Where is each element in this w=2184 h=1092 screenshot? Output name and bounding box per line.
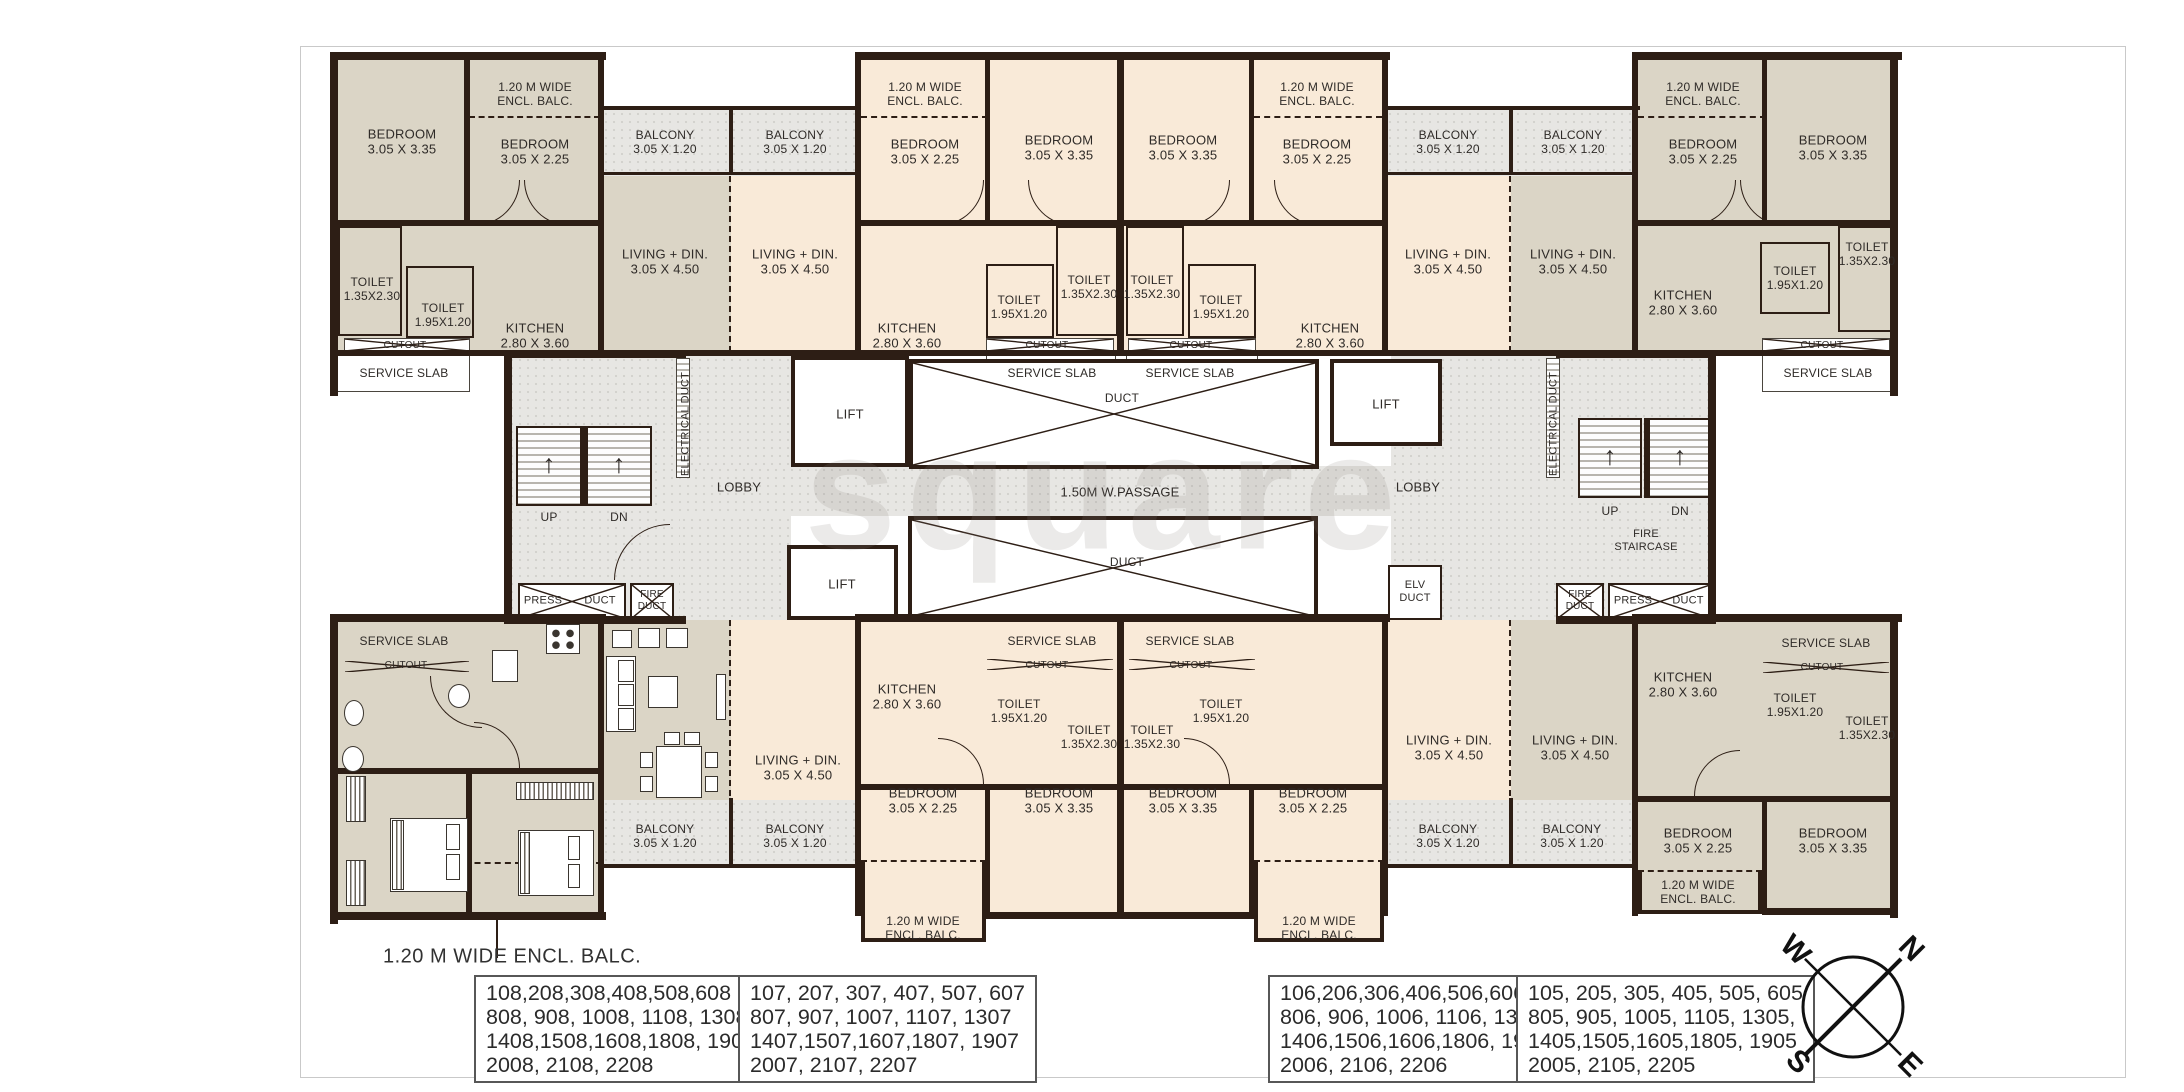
room-label: BEDROOM3.05 X 2.25: [501, 137, 570, 168]
room-label-line: BEDROOM: [889, 786, 958, 801]
balcony-label: BALCONY3.05 X 1.20: [763, 128, 827, 156]
room-label: BEDROOM3.05 X 2.25: [889, 786, 958, 817]
duct-label: DUCT: [1105, 391, 1139, 405]
wall-segment: [1249, 786, 1254, 916]
room-label: LIVING + DIN.3.05 X 4.50: [1405, 247, 1491, 278]
room-label-line: 3.05 X 3.35: [1149, 801, 1218, 816]
room-label: LIVING + DIN.3.05 X 4.50: [755, 753, 841, 784]
lift-label-line: LIFT: [1372, 396, 1400, 411]
room-label-line: BEDROOM: [1025, 786, 1094, 801]
wall-segment: [1509, 798, 1513, 865]
toilet-label: TOILET1.95X1.20: [1193, 697, 1250, 725]
stair-arrow: ↑: [1673, 441, 1686, 472]
lobby-label-line: LOBBY: [717, 479, 761, 494]
room-label: BEDROOM3.05 X 3.35: [1025, 133, 1094, 164]
toilet-label-line: TOILET: [1839, 240, 1896, 254]
electrical-duct-label-line: ELECTRICAL DUCT: [1548, 372, 1561, 476]
wall-segment: [464, 56, 470, 226]
duct-label-line: DUCT: [1110, 555, 1144, 569]
furniture-rect: [705, 776, 718, 792]
balcony-label-line: BALCONY: [633, 128, 697, 142]
lift-label: LIFT: [828, 576, 856, 591]
service-slab-label-line: SERVICE SLAB: [1782, 636, 1871, 650]
furniture-rect: [618, 708, 634, 730]
furniture-rect: [656, 746, 702, 798]
toilet-label-line: 1.95X1.20: [415, 315, 472, 329]
encl-balc-label-line: ENCL. BALC.: [1281, 928, 1357, 942]
encl-balc-label: 1.20 M WIDEENCL. BALC.: [497, 80, 573, 108]
toilet-label-line: 1.35X2.30: [1839, 728, 1896, 742]
room-label-line: 3.05 X 3.35: [368, 142, 437, 157]
balcony-label-line: 3.05 X 1.20: [763, 142, 827, 156]
dashed-line: [729, 620, 734, 796]
room-label-line: 3.05 X 4.50: [1530, 262, 1616, 277]
up-label-line: UP: [540, 510, 557, 524]
passage-label: 1.50M W.PASSAGE: [1060, 484, 1179, 499]
encl-balc-label-line: 1.20 M WIDE: [1281, 914, 1357, 928]
balcony-label-line: 3.05 X 1.20: [1540, 836, 1604, 850]
wall-segment: [598, 56, 604, 356]
encl-balc-label-line: 1.20 M WIDE: [887, 80, 963, 94]
furniture-rect: [648, 676, 678, 708]
service-slab-label: SERVICE SLAB: [360, 634, 449, 648]
furniture-stove: [546, 624, 580, 654]
electrical-duct-label-line: ELECTRICAL DUCT: [680, 372, 693, 476]
toilet-label-line: TOILET: [991, 697, 1048, 711]
living-105b: [1511, 620, 1636, 800]
fire-duct-label-line: FIRE: [1566, 589, 1595, 601]
toilet-label: TOILET1.35X2.30: [1839, 714, 1896, 742]
toilet-label-line: TOILET: [1193, 293, 1250, 307]
wall-segment: [504, 352, 686, 358]
cutout-label: CUTOUT: [1801, 662, 1844, 674]
wall-segment: [1121, 220, 1386, 226]
fire-duct-label-line: DUCT: [638, 601, 667, 613]
wall-segment: [1556, 352, 1716, 358]
room-label-line: 3.05 X 3.35: [1799, 841, 1868, 856]
toilet-label: TOILET1.95X1.20: [1767, 264, 1824, 292]
cutout-label: CUTOUT: [385, 660, 428, 672]
toilet-label-line: TOILET: [991, 293, 1048, 307]
encl-balc-label: 1.20 M WIDEENCL. BALC.: [1279, 80, 1355, 108]
furniture-rect: [618, 684, 634, 706]
furniture-rect: [705, 752, 718, 768]
room-label-line: BEDROOM: [1799, 826, 1868, 841]
room-label-line: BEDROOM: [368, 127, 437, 142]
toilet-label: TOILET1.35X2.30: [1839, 240, 1896, 268]
wall-segment: [1632, 56, 1638, 356]
room-label-line: 3.05 X 4.50: [752, 262, 838, 277]
stair-arrow-line: ↑: [542, 449, 555, 480]
room-label-line: 3.05 X 3.35: [1799, 148, 1868, 163]
dn-label: DN: [1671, 504, 1689, 518]
cutout-label-line: CUTOUT: [1026, 340, 1069, 352]
room-label-line: 3.05 X 4.50: [1532, 748, 1618, 763]
balcony-label: BALCONY3.05 X 1.20: [763, 822, 827, 850]
cutout-label: CUTOUT: [1801, 340, 1844, 352]
encl-balc-label-line: 1.20 M WIDE: [1660, 878, 1736, 892]
room-label: BEDROOM3.05 X 2.25: [1283, 137, 1352, 168]
room-label-line: LIVING + DIN.: [622, 247, 708, 262]
room-label: BEDROOM3.05 X 3.35: [368, 127, 437, 158]
room-label: BEDROOM3.05 X 2.25: [1669, 137, 1738, 168]
room-label-line: LIVING + DIN.: [1405, 247, 1491, 262]
balcony-label: BALCONY3.05 X 1.20: [1416, 128, 1480, 156]
duct-label-line: DUCT: [1672, 595, 1703, 608]
room-label-line: LIVING + DIN.: [752, 247, 838, 262]
room-label: BEDROOM3.05 X 3.35: [1149, 786, 1218, 817]
furniture-rect: [492, 650, 518, 682]
duct-shaft: [909, 359, 1319, 469]
room-label-line: BEDROOM: [1149, 786, 1218, 801]
toilet-label-line: 1.35X2.30: [1839, 254, 1896, 268]
duct-label-line: DUCT: [584, 595, 615, 608]
room-label: LIVING + DIN.3.05 X 4.50: [752, 247, 838, 278]
dashed-line: [1509, 620, 1514, 796]
wall-segment: [1632, 620, 1638, 916]
furniture-rect: [666, 628, 688, 648]
fire-staircase-label-line: FIRE: [1614, 528, 1677, 541]
compass-icon: N E S W: [1762, 916, 1944, 1092]
service-slab-label-line: SERVICE SLAB: [360, 634, 449, 648]
balcony-label-line: BALCONY: [1540, 822, 1604, 836]
room-label: BEDROOM3.05 X 2.25: [1664, 826, 1733, 857]
toilet-label-line: TOILET: [1061, 723, 1118, 737]
room-label-line: BEDROOM: [891, 137, 960, 152]
toilet-label-line: TOILET: [344, 275, 401, 289]
fire-duct-label: FIREDUCT: [638, 589, 667, 613]
toilet-label-line: 1.35X2.30: [1061, 287, 1118, 301]
encl-balc-label-line: ENCL. BALC.: [887, 94, 963, 108]
room-label-line: 3.05 X 3.35: [1149, 148, 1218, 163]
encl-balc-label-line: ENCL. BALC.: [885, 928, 961, 942]
room-label-line: KITCHEN: [1296, 321, 1365, 336]
dn-label-line: DN: [1671, 504, 1689, 518]
room-label-line: 3.05 X 4.50: [1406, 748, 1492, 763]
toilet-label-line: TOILET: [415, 301, 472, 315]
flat-numbers-line: 806, 906, 1006, 1106, 1306: [1280, 1005, 1549, 1029]
balcony-label-line: BALCONY: [763, 128, 827, 142]
furniture-hatch: [516, 782, 594, 800]
cutout-label: CUTOUT: [1026, 340, 1069, 352]
furniture-rect: [638, 628, 660, 648]
cutout-label: CUTOUT: [1170, 660, 1213, 672]
furniture-oval: [344, 700, 364, 726]
room-label-line: 2.80 X 3.60: [1649, 685, 1718, 700]
flat-numbers-line: 2006, 2106, 2206: [1280, 1053, 1549, 1077]
encl-balc-label: 1.20 M WIDEENCL. BALC.: [885, 914, 961, 942]
room-label-line: 3.05 X 4.50: [1405, 262, 1491, 277]
lobby-label-line: LOBBY: [1396, 479, 1440, 494]
room-label-line: 3.05 X 2.25: [1279, 801, 1348, 816]
room-label-line: BEDROOM: [1669, 137, 1738, 152]
toilet-label-line: TOILET: [1839, 714, 1896, 728]
service-slab-label: SERVICE SLAB: [1782, 636, 1871, 650]
room-label-line: KITCHEN: [501, 321, 570, 336]
room-label-line: 3.05 X 3.35: [1025, 801, 1094, 816]
cross-hatch-icon: [913, 363, 1315, 465]
wall-segment: [1762, 908, 1898, 915]
room-label-line: BEDROOM: [1279, 786, 1348, 801]
room-label-line: KITCHEN: [873, 682, 942, 697]
wall-segment: [1121, 912, 1254, 919]
balcony-label-line: BALCONY: [1416, 128, 1480, 142]
wall-segment: [985, 786, 990, 916]
cutout-label-line: CUTOUT: [384, 340, 427, 352]
wall-segment: [1117, 620, 1124, 916]
furniture-rect: [568, 864, 580, 888]
stair-arrow-line: ↑: [612, 449, 625, 480]
room-label: KITCHEN2.80 X 3.60: [1296, 321, 1365, 352]
cutout-label-line: CUTOUT: [1801, 662, 1844, 674]
flat-numbers-line: 1408,1508,1608,1808, 1908: [486, 1029, 755, 1053]
furniture-rect: [618, 660, 634, 682]
cutout-label-line: CUTOUT: [1801, 340, 1844, 352]
balcony-label: BALCONY3.05 X 1.20: [1540, 822, 1604, 850]
room-label: BEDROOM3.05 X 3.35: [1799, 826, 1868, 857]
floor-plan: BEDROOM3.05 X 3.351.20 M WIDEENCL. BALC.…: [0, 0, 2184, 1092]
room-label-line: 3.05 X 2.25: [891, 152, 960, 167]
room-label: BEDROOM3.05 X 3.35: [1149, 133, 1218, 164]
fire-duct-label: FIREDUCT: [1566, 589, 1595, 613]
room-label-line: 3.05 X 2.25: [1283, 152, 1352, 167]
fire-duct-label-line: FIRE: [638, 589, 667, 601]
toilet-label-line: 1.35X2.30: [1061, 737, 1118, 751]
room-label: BEDROOM3.05 X 3.35: [1799, 133, 1868, 164]
encl-balc-label-line: 1.20 M WIDE: [497, 80, 573, 94]
electrical-duct-label: ELECTRICAL DUCT: [1548, 372, 1561, 476]
lobby-label: LOBBY: [717, 479, 761, 494]
stair-arrow: ↑: [1603, 441, 1616, 472]
passage-label-line: 1.50M W.PASSAGE: [1060, 484, 1179, 499]
room-label-line: KITCHEN: [1649, 288, 1718, 303]
wall-segment: [1632, 52, 1902, 60]
balcony-label-line: BALCONY: [763, 822, 827, 836]
duct-label: DUCT: [1672, 595, 1703, 608]
room-label-line: 2.80 X 3.60: [1649, 303, 1718, 318]
room-label-line: BEDROOM: [1283, 137, 1352, 152]
balcony-label-line: BALCONY: [633, 822, 697, 836]
up-label-line: UP: [1601, 504, 1618, 518]
room-label: KITCHEN2.80 X 3.60: [1649, 670, 1718, 701]
service-slab-label-line: SERVICE SLAB: [360, 366, 449, 380]
room-label: KITCHEN2.80 X 3.60: [501, 321, 570, 352]
room-label-line: LIVING + DIN.: [1406, 733, 1492, 748]
flats-107-series: 107, 207, 307, 407, 507, 607807, 907, 10…: [738, 975, 1037, 1083]
wall-segment: [1890, 614, 1898, 918]
cutout-label-line: CUTOUT: [385, 660, 428, 672]
room-label-line: 3.05 X 4.50: [755, 768, 841, 783]
encl-balc-label: 1.20 M WIDEENCL. BALC.: [1665, 80, 1741, 108]
room-label: LIVING + DIN.3.05 X 4.50: [1532, 733, 1618, 764]
fire-duct-label-line: DUCT: [1566, 601, 1595, 613]
toilet-label: TOILET1.95X1.20: [1193, 293, 1250, 321]
balcony-label-line: 3.05 X 1.20: [1541, 142, 1605, 156]
toilet-label-line: 1.35X2.30: [1124, 287, 1181, 301]
flat-numbers-line: 807, 907, 1007, 1107, 1307: [750, 1005, 1025, 1029]
up-label: UP: [540, 510, 557, 524]
encl-balc-label-line: ENCL. BALC.: [497, 94, 573, 108]
wall-segment: [582, 426, 586, 506]
room-label-line: 3.05 X 2.25: [1669, 152, 1738, 167]
cutout-label-line: CUTOUT: [1170, 660, 1213, 672]
furniture-rect: [640, 752, 653, 768]
encl-balc-label-line: ENCL. BALC.: [1660, 892, 1736, 906]
press-label-line: PRESS: [524, 595, 562, 608]
dn-label: DN: [610, 510, 628, 524]
wall-segment: [1509, 108, 1513, 175]
furniture-rect: [716, 674, 726, 720]
electrical-duct-label: ELECTRICAL DUCT: [680, 372, 693, 476]
flat-numbers-line: 107, 207, 307, 407, 507, 607: [750, 981, 1025, 1005]
room-label-line: 3.05 X 2.25: [889, 801, 958, 816]
balcony-label: BALCONY3.05 X 1.20: [633, 128, 697, 156]
toilet-label-line: 1.35X2.30: [1124, 737, 1181, 751]
flats-108-series: 108,208,308,408,508,608808, 908, 1008, 1…: [474, 975, 767, 1083]
room-label-line: 2.80 X 3.60: [873, 336, 942, 351]
room-label-line: 3.05 X 2.25: [1664, 841, 1733, 856]
toilet-label: TOILET1.95X1.20: [415, 301, 472, 329]
room-label-line: KITCHEN: [873, 321, 942, 336]
furniture-rect: [568, 836, 580, 860]
room-label: BEDROOM3.05 X 2.25: [1279, 786, 1348, 817]
room-label-line: BEDROOM: [501, 137, 570, 152]
furniture-rect: [446, 854, 460, 880]
room-label: LIVING + DIN.3.05 X 4.50: [622, 247, 708, 278]
living-106b: [1386, 620, 1511, 800]
wall-segment: [1762, 798, 1767, 912]
room-label-line: LIVING + DIN.: [1532, 733, 1618, 748]
room-label: KITCHEN2.80 X 3.60: [873, 321, 942, 352]
encl-balc-label-line: 1.20 M WIDE: [1665, 80, 1741, 94]
room-label-line: LIVING + DIN.: [1530, 247, 1616, 262]
furniture-rect: [684, 732, 700, 745]
room-label-line: BEDROOM: [1664, 826, 1733, 841]
toilet-label-line: TOILET: [1193, 697, 1250, 711]
toilet-label: TOILET1.95X1.20: [1767, 691, 1824, 719]
room-label-line: BEDROOM: [1149, 133, 1218, 148]
room-label: KITCHEN2.80 X 3.60: [873, 682, 942, 713]
cutout-label-line: CUTOUT: [1170, 340, 1213, 352]
furniture-hatch: [346, 776, 366, 822]
toilet-label-line: 1.95X1.20: [991, 307, 1048, 321]
service-slab-label-line: SERVICE SLAB: [1146, 366, 1235, 380]
encl-balc-label-line: ENCL. BALC.: [1665, 94, 1741, 108]
cutout-label: CUTOUT: [384, 340, 427, 352]
lift-label: LIFT: [1372, 396, 1400, 411]
wall-segment: [1249, 56, 1254, 222]
toilet-label-line: TOILET: [1767, 691, 1824, 705]
room-label-line: LIVING + DIN.: [755, 753, 841, 768]
toilet-label-line: TOILET: [1124, 273, 1181, 287]
stair-arrow-line: ↑: [1673, 441, 1686, 472]
dashed-line: [729, 176, 734, 352]
press-label: PRESS: [524, 595, 562, 608]
service-slab-label: SERVICE SLAB: [1784, 366, 1873, 380]
wall-segment: [1708, 352, 1716, 624]
duct-label: DUCT: [1110, 555, 1144, 569]
balcony-label-line: 3.05 X 1.20: [1416, 836, 1480, 850]
room-label-line: BEDROOM: [1799, 133, 1868, 148]
flat-numbers-line: 1407,1507,1607,1807, 1907: [750, 1029, 1025, 1053]
dashed-line: [1509, 176, 1514, 352]
furniture-rect: [612, 630, 632, 648]
service-slab-label-line: SERVICE SLAB: [1784, 366, 1873, 380]
toilet-label-line: 1.35X2.30: [344, 289, 401, 303]
wall-segment: [729, 798, 733, 865]
wall-segment: [1644, 418, 1648, 498]
toilet-label: TOILET1.35X2.30: [1061, 723, 1118, 751]
room-label: LIVING + DIN.3.05 X 4.50: [1406, 733, 1492, 764]
room-label: LIVING + DIN.3.05 X 4.50: [1530, 247, 1616, 278]
furniture-hatch: [392, 820, 404, 890]
flat-numbers-line: 2008, 2108, 2208: [486, 1053, 755, 1077]
balcony-label-line: 3.05 X 1.20: [633, 836, 697, 850]
service-slab-label-line: SERVICE SLAB: [1008, 366, 1097, 380]
toilet-label-line: TOILET: [1061, 273, 1118, 287]
press-label: PRESS: [1614, 595, 1652, 608]
fire-staircase-label-line: STAIRCASE: [1614, 541, 1677, 554]
toilet-label: TOILET1.35X2.30: [1124, 273, 1181, 301]
wall-segment: [1382, 56, 1388, 356]
encl-balc-label-line: 1.20 M WIDE: [1279, 80, 1355, 94]
service-slab-label: SERVICE SLAB: [1146, 366, 1235, 380]
toilet-label-line: 1.95X1.20: [991, 711, 1048, 725]
flat-numbers-line: 106,206,306,406,506,606: [1280, 981, 1549, 1005]
balcony-label-line: 3.05 X 1.20: [633, 142, 697, 156]
up-label: UP: [1601, 504, 1618, 518]
wall-segment: [985, 56, 990, 222]
room-label-line: 3.05 X 2.25: [501, 152, 570, 167]
lobby-label: LOBBY: [1396, 479, 1440, 494]
stair-arrow-line: ↑: [1603, 441, 1616, 472]
furniture-hatch: [346, 860, 366, 906]
flat-numbers-line: 1406,1506,1606,1806, 1906: [1280, 1029, 1549, 1053]
dn-label-line: DN: [610, 510, 628, 524]
toilet-label-line: 1.95X1.20: [1193, 711, 1250, 725]
encl-balc-label: 1.20 M WIDEENCL. BALC.: [887, 80, 963, 108]
balcony-label: BALCONY3.05 X 1.20: [633, 822, 697, 850]
lift-label-line: LIFT: [836, 406, 864, 421]
furniture-rect: [446, 824, 460, 850]
duct-label-line: DUCT: [1105, 391, 1139, 405]
wall-segment: [1636, 796, 1898, 802]
lift-label: LIFT: [836, 406, 864, 421]
room-label-line: 2.80 X 3.60: [873, 697, 942, 712]
press-label-line: PRESS: [1614, 595, 1652, 608]
cutout-label-line: CUTOUT: [1026, 660, 1069, 672]
toilet-label-line: TOILET: [1767, 264, 1824, 278]
toilet-label-line: 1.95X1.20: [1767, 278, 1824, 292]
toilet-label-line: TOILET: [1124, 723, 1181, 737]
wall-segment: [1117, 56, 1124, 356]
service-slab-label-line: SERVICE SLAB: [1146, 634, 1235, 648]
stair-arrow: ↑: [542, 449, 555, 480]
cutout-label: CUTOUT: [1170, 340, 1213, 352]
flat-numbers-line: 108,208,308,408,508,608: [486, 981, 755, 1005]
encl-balc-label-line: 1.20 M WIDE: [885, 914, 961, 928]
room-label-line: KITCHEN: [1649, 670, 1718, 685]
duct-label: DUCT: [584, 595, 615, 608]
wall-segment: [859, 220, 1121, 226]
furniture-rect: [664, 732, 680, 745]
wall-segment: [504, 352, 512, 622]
toilet-label-line: 1.95X1.20: [1767, 705, 1824, 719]
furniture-rect: [640, 776, 653, 792]
wall-segment: [729, 108, 733, 175]
flat-numbers-line: 2007, 2107, 2207: [750, 1053, 1025, 1077]
encl-balc-annotation: 1.20 M WIDE ENCL. BALC.: [383, 946, 641, 969]
